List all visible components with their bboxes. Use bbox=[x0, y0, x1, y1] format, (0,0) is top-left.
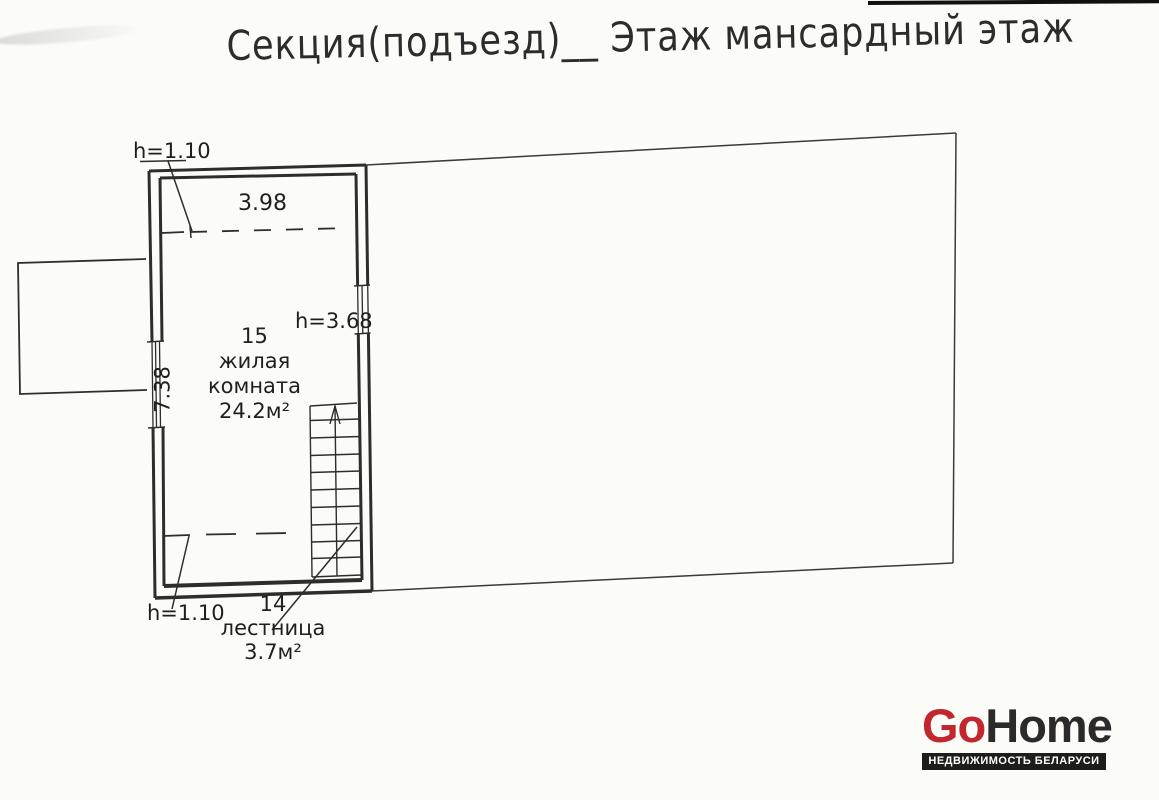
depth-dimension: 7.38 bbox=[153, 360, 174, 420]
room-label-block: 15 жилая комната 24.2м² bbox=[197, 324, 312, 424]
room-area: 24.2м² bbox=[197, 399, 312, 424]
height-label-top-left: h=1.10 bbox=[133, 141, 211, 162]
gohome-logo: GoHome НЕДВИЖИМОСТЬ БЕЛАРУСИ bbox=[922, 700, 1114, 770]
staircase bbox=[310, 403, 362, 577]
room-number: 15 bbox=[197, 324, 312, 349]
annex-outline bbox=[18, 259, 147, 394]
stairs-number: 14 bbox=[218, 592, 328, 616]
stairs-label-block: 14 лестница 3.7м² bbox=[218, 592, 328, 664]
width-dimension: 3.98 bbox=[238, 193, 287, 215]
scanned-floor-plan-page: Секция(подъезд)__ Этаж мансардный этаж bbox=[0, 0, 1159, 800]
room-name-line1: жилая bbox=[197, 349, 312, 374]
gohome-logo-tagline: НЕДВИЖИМОСТЬ БЕЛАРУСИ bbox=[922, 753, 1106, 770]
gohome-logo-text: GoHome bbox=[922, 700, 1114, 752]
stairs-name: лестница bbox=[218, 616, 328, 640]
room-name-line2: комната bbox=[197, 374, 312, 399]
gohome-logo-go: Go bbox=[922, 699, 985, 752]
gohome-logo-home: Home bbox=[985, 699, 1112, 752]
mansard-outline bbox=[366, 133, 956, 591]
height-label-bottom-left: h=1.10 bbox=[147, 603, 225, 624]
stairs-area: 3.7м² bbox=[218, 640, 328, 664]
